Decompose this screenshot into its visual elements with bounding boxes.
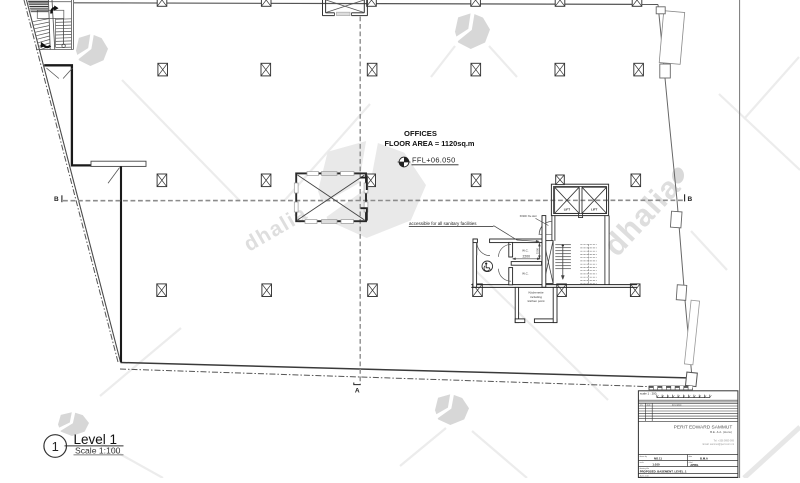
svg-text:scale 1 : 200: scale 1 : 200 bbox=[640, 392, 657, 396]
svg-text:OFFICES: OFFICES bbox=[404, 129, 437, 138]
svg-text:scale: scale bbox=[640, 462, 644, 464]
svg-text:Kitchenette: Kitchenette bbox=[528, 290, 543, 294]
svg-text:including: including bbox=[530, 295, 542, 299]
svg-text:Email: sammut@perit.com.mt: Email: sammut@perit.com.mt bbox=[703, 443, 735, 446]
svg-text:rev: rev bbox=[640, 405, 643, 407]
svg-text:accessible for all sanitary: accessible for all sanitary facilities bbox=[409, 221, 477, 226]
svg-text:LIFT: LIFT bbox=[591, 208, 597, 212]
svg-text:W.C.: W.C. bbox=[522, 272, 529, 276]
svg-text:1: 1 bbox=[52, 439, 59, 454]
svg-text:PROPOSED_BASEMENT_LEVEL_1: PROPOSED_BASEMENT_LEVEL_1 bbox=[640, 469, 687, 473]
svg-text:2200: 2200 bbox=[523, 255, 531, 259]
svg-text:date: date bbox=[689, 455, 693, 458]
svg-text:B.E. & A. (Hons): B.E. & A. (Hons) bbox=[710, 430, 732, 434]
svg-text:description: description bbox=[672, 404, 682, 407]
svg-text:kitchen point: kitchen point bbox=[528, 299, 545, 303]
svg-text:APRIL: APRIL bbox=[690, 463, 699, 467]
svg-text:A3 1:100: A3 1:100 bbox=[640, 475, 650, 478]
svg-text:Scale 1:100: Scale 1:100 bbox=[75, 446, 121, 456]
svg-text:B: B bbox=[54, 196, 59, 203]
svg-text:P2200: fire door: P2200: fire door bbox=[520, 215, 537, 218]
svg-text:Level 1: Level 1 bbox=[74, 432, 118, 447]
svg-text:1:100: 1:100 bbox=[652, 463, 660, 467]
svg-text:NO.11: NO.11 bbox=[654, 457, 662, 461]
svg-text:drawn by: drawn by bbox=[640, 456, 647, 458]
svg-text:1500: 1500 bbox=[535, 247, 539, 254]
svg-text:W.C.: W.C. bbox=[522, 249, 529, 253]
svg-text:B.M.A: B.M.A bbox=[700, 457, 708, 461]
svg-text:LIFT: LIFT bbox=[564, 208, 570, 212]
svg-text:A: A bbox=[355, 388, 360, 395]
svg-text:FLOOR AREA = 1120sq.m: FLOOR AREA = 1120sq.m bbox=[384, 139, 474, 148]
svg-text:B: B bbox=[688, 196, 693, 203]
svg-text:FFL+06.050: FFL+06.050 bbox=[412, 156, 456, 165]
